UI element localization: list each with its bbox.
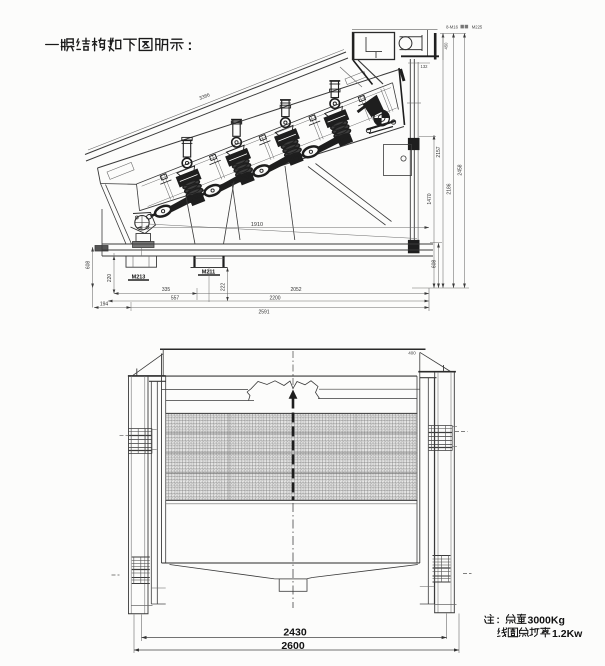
svg-text:M225: M225 xyxy=(472,25,483,30)
svg-text:1470: 1470 xyxy=(427,193,433,204)
svg-text:400: 400 xyxy=(408,351,416,356)
svg-text:2200: 2200 xyxy=(269,296,280,302)
svg-text:2157: 2157 xyxy=(436,146,442,157)
svg-text:2600: 2600 xyxy=(281,640,305,652)
svg-text:2591: 2591 xyxy=(258,310,269,316)
svg-text:335: 335 xyxy=(162,287,171,293)
svg-text:222: 222 xyxy=(221,283,227,292)
svg-text:450: 450 xyxy=(444,42,449,50)
svg-text:557: 557 xyxy=(171,296,180,302)
svg-text:1.2Kw: 1.2Kw xyxy=(552,628,583,640)
svg-text:2430: 2430 xyxy=(283,627,307,639)
svg-text:2458: 2458 xyxy=(457,164,463,175)
svg-text:3000Kg: 3000Kg xyxy=(528,615,565,627)
svg-text:220: 220 xyxy=(107,274,113,283)
svg-text:8-M16: 8-M16 xyxy=(446,25,459,30)
svg-text:132: 132 xyxy=(421,64,429,69)
svg-text:194: 194 xyxy=(100,302,109,308)
svg-text:2052: 2052 xyxy=(290,287,301,293)
svg-text:2186: 2186 xyxy=(446,183,452,194)
svg-text:1910: 1910 xyxy=(251,222,263,228)
svg-text:608: 608 xyxy=(86,261,92,270)
svg-text:608: 608 xyxy=(431,260,437,269)
